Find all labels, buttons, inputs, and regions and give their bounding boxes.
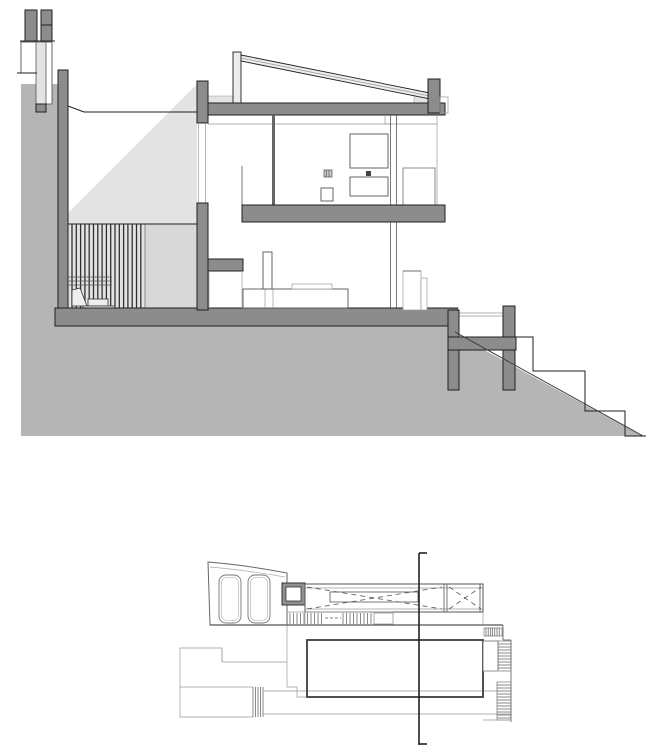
plan-clerestory-strip bbox=[305, 584, 483, 612]
plan-view bbox=[180, 553, 511, 745]
left-window bbox=[199, 123, 206, 203]
plan-right-wing bbox=[483, 625, 511, 722]
gate-frame bbox=[21, 42, 37, 73]
left-wall-lower bbox=[197, 203, 208, 310]
upper-glass-wall bbox=[391, 115, 397, 205]
section-view bbox=[17, 10, 646, 436]
lower-glass-wall bbox=[391, 222, 397, 308]
wing-room bbox=[483, 641, 498, 671]
stair-landing bbox=[374, 613, 393, 624]
gate-channel bbox=[36, 42, 46, 112]
wing-stair-lower-treads bbox=[497, 685, 511, 718]
mid-floor-slab bbox=[242, 205, 445, 222]
living-room-outline bbox=[307, 640, 483, 697]
clerestory-post bbox=[233, 52, 241, 104]
upper-floor-interior bbox=[208, 115, 437, 205]
left-parapet-wall bbox=[197, 81, 208, 123]
lower-floor-interior bbox=[208, 222, 427, 310]
plan-stair-small bbox=[253, 687, 263, 717]
wing-stair-upper-treads bbox=[498, 644, 511, 668]
gate-channel-step bbox=[36, 104, 46, 112]
flat-roof-slab bbox=[208, 103, 445, 115]
wing-stair-top-treads bbox=[486, 628, 499, 636]
terrace-lower-slab bbox=[448, 337, 516, 350]
drawing-sheet bbox=[0, 0, 663, 754]
stool bbox=[321, 188, 333, 201]
clerestory-roof bbox=[208, 52, 448, 115]
plan-main-volume bbox=[210, 612, 503, 697]
wall-picture bbox=[350, 134, 388, 168]
retaining-wall bbox=[58, 70, 68, 318]
plan-skylight-slot bbox=[330, 592, 418, 602]
stair-treads-a bbox=[290, 613, 322, 624]
section-cut-line bbox=[419, 553, 427, 745]
architectural-drawing bbox=[0, 0, 663, 754]
stair-treads-b bbox=[343, 613, 371, 624]
console-desk bbox=[350, 177, 388, 196]
gate-pier-left bbox=[25, 10, 37, 41]
partition-wall bbox=[272, 115, 275, 205]
balcony-guardrail bbox=[403, 168, 435, 205]
low-table bbox=[292, 284, 332, 289]
ground-slab bbox=[55, 308, 458, 326]
chair-back bbox=[263, 252, 272, 289]
wall-switch bbox=[324, 170, 332, 177]
terrace-planters bbox=[403, 271, 427, 310]
screen-solid-panel bbox=[145, 224, 197, 308]
plan-terraces bbox=[180, 648, 511, 717]
kitchen-counter bbox=[243, 289, 348, 308]
desk-lamp bbox=[366, 171, 371, 176]
roof-parapet-right bbox=[428, 79, 440, 113]
plan-skylight-box bbox=[282, 583, 305, 605]
plan-garage bbox=[208, 562, 287, 625]
stub-beam bbox=[208, 259, 243, 271]
ottoman bbox=[88, 299, 108, 306]
glazing-inner-line bbox=[241, 58, 430, 96]
plan-main-stair bbox=[288, 612, 393, 624]
ceiling-step-right bbox=[385, 115, 437, 124]
